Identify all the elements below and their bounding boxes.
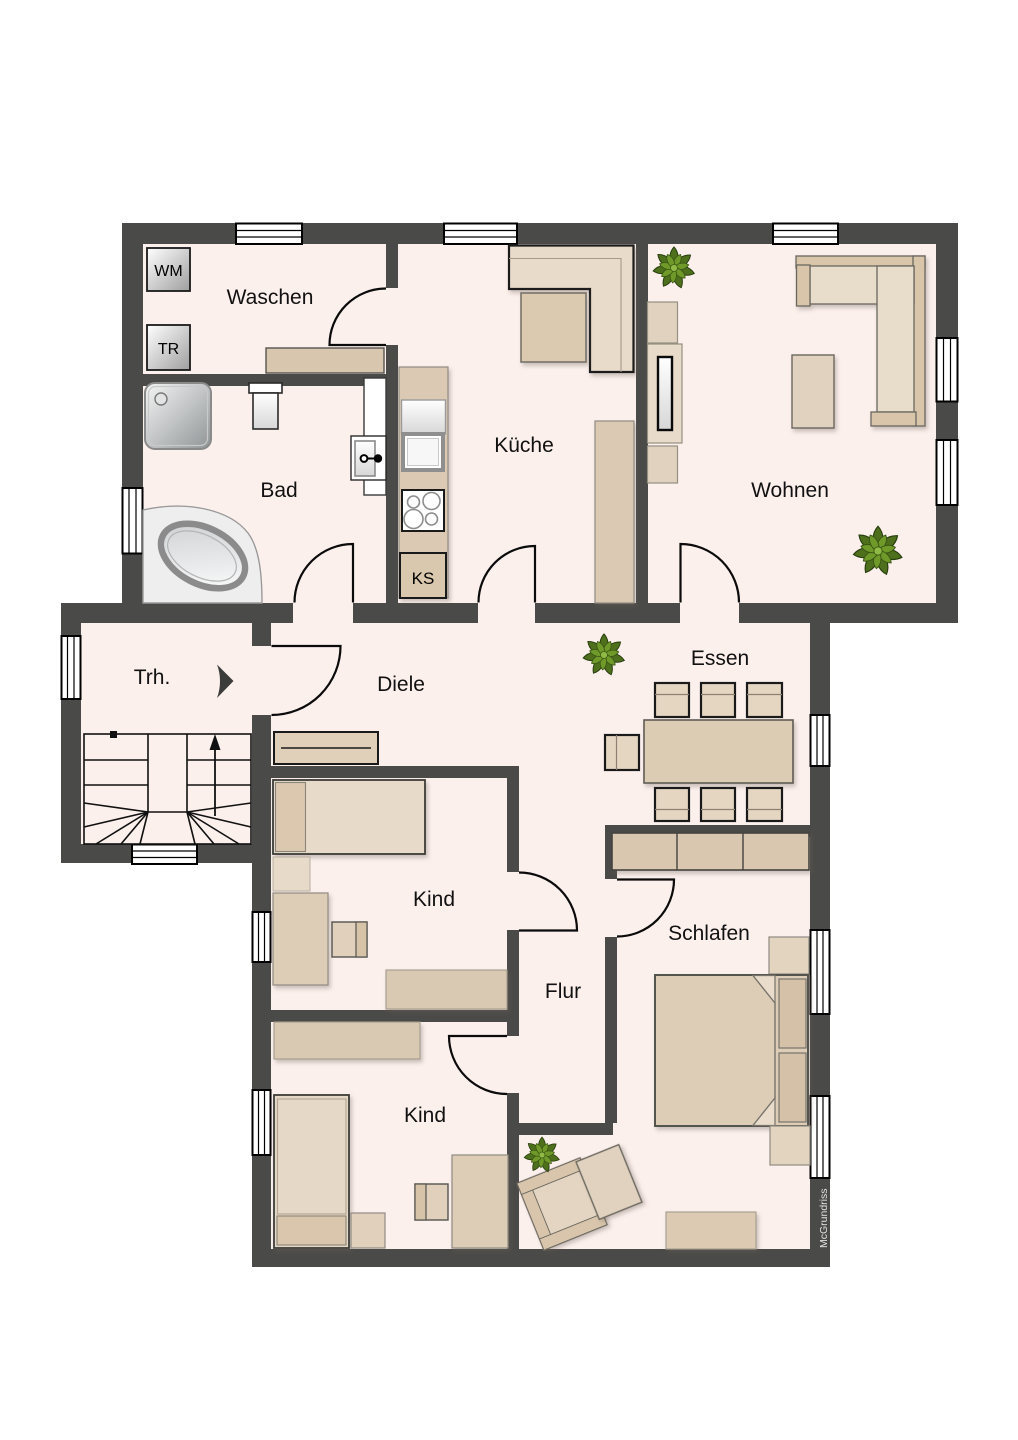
svg-text:Bad: Bad [260,479,297,502]
svg-text:Wohnen: Wohnen [751,479,829,502]
svg-text:Waschen: Waschen [227,286,314,309]
svg-text:Kind: Kind [413,888,455,911]
svg-text:Trh.: Trh. [134,666,171,689]
svg-text:Essen: Essen [691,647,749,670]
svg-text:Flur: Flur [545,980,581,1003]
svg-text:Kind: Kind [404,1104,446,1127]
svg-text:Diele: Diele [377,673,425,696]
svg-text:TR: TR [158,341,179,358]
svg-text:McGrundriss: McGrundriss [818,1188,830,1248]
svg-text:Küche: Küche [494,434,554,457]
svg-text:KS: KS [412,569,435,588]
svg-text:WM: WM [154,263,182,280]
svg-text:Schlafen: Schlafen [668,922,750,945]
